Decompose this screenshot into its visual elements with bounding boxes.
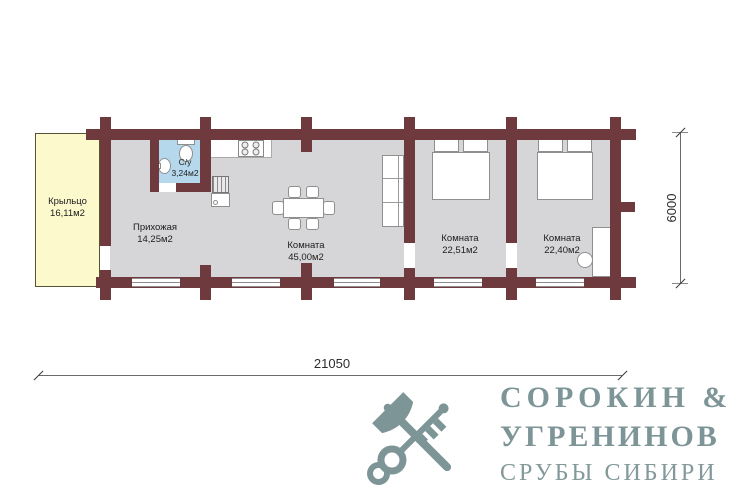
window-bedroom2 xyxy=(536,278,584,287)
radiator-icon xyxy=(212,176,229,193)
pillow-icon xyxy=(567,139,592,152)
wall-top xyxy=(86,129,636,140)
door-bedroom1 xyxy=(404,243,415,268)
dimension-depth-value: 6000 xyxy=(664,187,678,229)
room-label-bedroom2: Комната22,40м2 xyxy=(522,233,602,258)
wall-hall-living-upper xyxy=(200,117,211,192)
wall-right xyxy=(610,117,621,300)
wall-right-log-end xyxy=(621,202,635,212)
wall-living-bedroom1-stub xyxy=(404,268,415,300)
door-bathroom xyxy=(159,183,176,192)
window-living-1 xyxy=(232,278,280,287)
dimension-line-depth xyxy=(680,133,681,283)
wall-bedroom1-bedroom2-stub xyxy=(506,268,517,300)
axe-and-key-logo-icon xyxy=(338,376,494,502)
chair-icon xyxy=(288,218,301,230)
window-living-2 xyxy=(334,278,380,287)
wall-left-lower xyxy=(100,270,111,300)
wall-living-bedroom1 xyxy=(404,117,415,243)
bed-icon xyxy=(432,152,490,200)
logo-tagline: СРУБЫ СИБИРИ xyxy=(500,456,753,490)
logo-company-line2: УГРЕНИНОВ xyxy=(500,417,753,456)
room-label-porch: Крыльцо16,11м2 xyxy=(35,196,100,221)
room-label-hallway: Прихожая14,25м2 xyxy=(113,222,197,247)
room-label-bedroom1: Комната22,51м2 xyxy=(420,233,500,258)
chair-icon xyxy=(323,201,335,215)
wall-bedroom1-bedroom2 xyxy=(506,117,517,243)
window-hallway xyxy=(132,278,180,287)
dimension-line-width xyxy=(38,375,622,376)
dimension-width-value: 21050 xyxy=(300,356,364,371)
sofa-icon xyxy=(382,155,404,227)
pillow-icon xyxy=(463,139,488,152)
window-bedroom1 xyxy=(434,278,482,287)
wall-hall-living-lower xyxy=(200,265,211,300)
floor-plan-canvas: Крыльцо16,11м2 Прихожая14,25м2 С/у3,24м2… xyxy=(0,0,753,502)
chair-icon xyxy=(306,218,319,230)
bed-icon xyxy=(537,152,593,200)
room-label-living: Комната45,00м2 xyxy=(266,240,346,265)
logo-text-block: СОРОКИН & УГРЕНИНОВ СРУБЫ СИБИРИ xyxy=(500,379,753,490)
chair-icon xyxy=(306,186,319,198)
logo-company-line1: СОРОКИН & xyxy=(500,379,753,417)
door-bedroom2 xyxy=(506,243,517,268)
room-label-bathroom: С/у3,24м2 xyxy=(166,157,204,179)
chair-icon xyxy=(288,186,301,198)
wall-left-upper xyxy=(100,117,111,246)
stove-icon xyxy=(238,140,264,157)
pillow-icon xyxy=(538,139,563,152)
wall-stub-top xyxy=(301,117,312,152)
wall-bathroom-bottom xyxy=(176,183,200,192)
wall-bathroom-left xyxy=(150,139,159,192)
dining-table-icon xyxy=(283,198,324,218)
cabinet-knob-icon xyxy=(213,200,218,205)
wall-stub-bottom xyxy=(301,263,312,300)
pillow-icon xyxy=(434,139,459,152)
